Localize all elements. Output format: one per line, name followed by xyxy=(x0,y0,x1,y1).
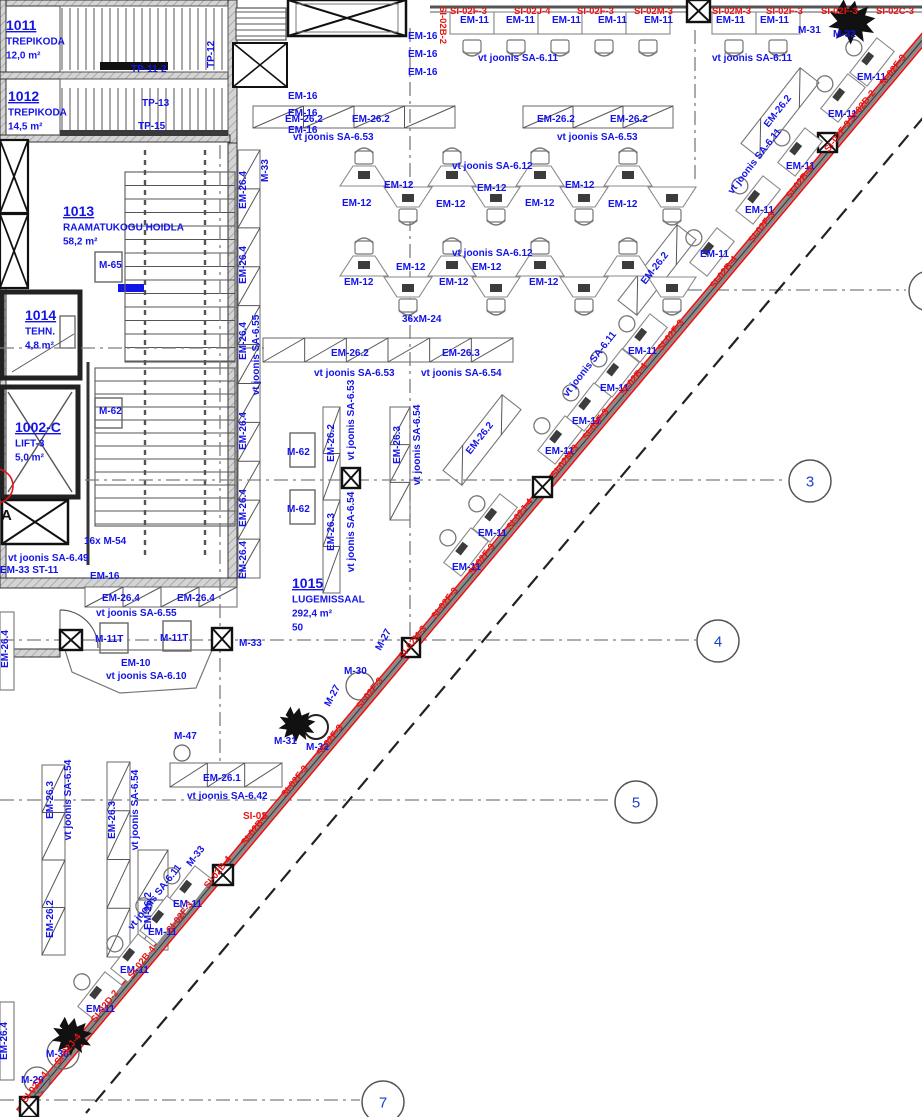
furniture-code-label: vt joonis SA-6.49 xyxy=(8,553,89,564)
facade-panel-label: SI-02M-3 xyxy=(712,6,751,17)
room-area: 14,5 m² xyxy=(8,122,43,133)
wall xyxy=(0,72,228,79)
furniture-code-label: TP-15 xyxy=(138,121,166,132)
room-area: 5,0 m² xyxy=(15,453,45,464)
furniture-code-label: EM-26.4 xyxy=(238,322,249,360)
furniture-code-label: EM-26.3 xyxy=(107,801,118,839)
furniture-code-label: EM-33 ST-11 xyxy=(0,565,59,576)
furniture-code-label: EM-26.4 xyxy=(0,1022,10,1060)
furniture-code-label: EM-26.4 xyxy=(238,489,249,527)
furniture-code-label: vt joonis SA-6.42 xyxy=(187,791,268,802)
furniture-code-label: EM-26.3 xyxy=(45,781,56,819)
furniture-code-label: M-62 xyxy=(287,447,310,458)
furniture-code-label: EM-26.3 xyxy=(326,513,337,551)
stool-m47 xyxy=(174,745,190,761)
furniture-code-label: vt joonis SA-6.53 xyxy=(557,132,638,143)
furniture-code-label: M-33 xyxy=(239,638,262,649)
furniture-code-label: EM-26.4 xyxy=(238,246,249,284)
furniture-code-label: EM-26.4 xyxy=(238,412,249,450)
furniture-code-label: EM-16 xyxy=(288,91,318,102)
furniture-code-label: TP-11-2 xyxy=(131,64,167,75)
furniture-code-label: EM-12 xyxy=(565,180,595,191)
furniture-code-label: vt joonis SA-6.54 xyxy=(421,368,502,379)
room-number: 1012 xyxy=(8,88,39,104)
room-name: LUGEMISSAAL xyxy=(292,595,365,606)
furniture-code-label: M-33 xyxy=(185,844,208,869)
facade-panel-label: SI-02F-3 xyxy=(766,6,803,17)
furniture-code-label: EM-11 xyxy=(628,346,657,357)
furniture-code-label: EM-16 xyxy=(408,49,438,60)
room-area: 292,4 m² xyxy=(292,609,333,620)
room-name: TEHN. xyxy=(25,327,55,338)
furniture-code-label: EM-26.2 xyxy=(331,348,369,359)
furniture-code-label: M-11T xyxy=(95,634,123,645)
furniture-code-label: vt joonis SA-6.12 xyxy=(452,248,533,259)
furniture-code-label: EM-11 xyxy=(700,249,729,260)
room-number: 1002-C xyxy=(15,419,61,435)
furniture-code-label: EM-26.2 xyxy=(285,114,323,125)
furniture-code-label: vt joonis SA-6.54 xyxy=(412,404,423,485)
furniture-code-label: vt joonis SA-6.10 xyxy=(106,671,187,682)
facade-panel-label: SI-02C-3 xyxy=(876,6,914,17)
furniture-code-label: EM-26.3 xyxy=(442,348,480,359)
furniture-code-label: EM-26.4 xyxy=(0,630,11,668)
furniture-code-label: M-47 xyxy=(174,731,197,742)
furniture-code-label: vt joonis SA-6.53 xyxy=(346,379,357,460)
grid-bubble-number: 5 xyxy=(632,795,640,812)
room-capacity: 50 xyxy=(292,623,304,634)
furniture-code-label: vt joonis SA-6.53 xyxy=(314,368,395,379)
room-number: 1014 xyxy=(25,307,56,323)
furniture-code-label: EM-26.2 xyxy=(610,114,648,125)
furniture-code-label: EM-16 xyxy=(408,31,438,42)
grid-bubble-number: 3 xyxy=(806,474,814,491)
furniture-code-label: EM-12 xyxy=(384,180,414,191)
furniture-code-label: EM-12 xyxy=(477,183,507,194)
furniture-code-label: vt joonis SA-6.55 xyxy=(251,314,262,395)
facade-panel-label: SI-02F-3 xyxy=(314,723,345,759)
room-number: 1015 xyxy=(292,575,323,591)
room-name: LIFT-3 xyxy=(15,439,45,450)
wall xyxy=(0,135,230,142)
furniture-code-label: EM-12 xyxy=(344,277,374,288)
furniture-code-label: EM-26.4 xyxy=(238,171,249,209)
room-name: RAAMATUKOGU HOIDLA xyxy=(63,223,184,234)
furniture-code-label: EM-26.2 xyxy=(143,892,154,930)
furniture-code-label: vt joonis SA-6.54 xyxy=(130,769,141,850)
furniture-code-label: EM-26.4 xyxy=(238,541,249,579)
furniture-code-label: vt joonis SA-6.11 xyxy=(478,53,558,64)
furniture-code-label: M-32 xyxy=(833,29,856,40)
furniture-code-label: EM-26.2 xyxy=(326,424,337,462)
furniture-code-label: TP-13 xyxy=(142,98,170,109)
grid-bubbles: 3457 xyxy=(362,460,831,1117)
furniture-code-label: 36xM-24 xyxy=(402,314,442,325)
facade-panel-label: SI-02F-3 xyxy=(821,6,858,17)
room-area: 12,0 m² xyxy=(6,51,41,62)
facade-panel-label: SI-02F-3 xyxy=(450,6,487,17)
furniture-code-label: EM-26.4 xyxy=(102,593,140,604)
grid-bubble-number: 4 xyxy=(714,634,722,651)
grid-bubble-number: 7 xyxy=(379,1095,387,1112)
furniture-code-label: EM-11 xyxy=(478,528,507,539)
furniture-code-label: EM-26.2 xyxy=(352,114,390,125)
room-name: TREPIKODA xyxy=(8,108,67,119)
facade-panel-label: SI-02F-3 xyxy=(429,586,460,622)
furniture-code-label: vt joonis SA-6.54 xyxy=(63,759,74,840)
floor-plan-canvas: TP-11-2TP-13TP-15TP-12M-33M-65M-62EM-16E… xyxy=(0,0,922,1117)
furniture-code-label: EM-12 xyxy=(472,262,502,273)
wall xyxy=(0,0,230,6)
furniture-code-label: EM-26.2 xyxy=(45,900,56,938)
furniture-code-label: vt joonis SA-6.55 xyxy=(96,608,177,619)
furniture-code-label: M-31 xyxy=(798,25,821,36)
furniture-code-label: EM-12 xyxy=(529,277,559,288)
furniture-code-label: vt joonis SA-6.11 xyxy=(712,53,792,64)
furniture-code-label: M-30 xyxy=(344,666,367,677)
furniture-code-label: EM-16 xyxy=(408,67,438,78)
room-number: 1011 xyxy=(6,17,37,33)
furniture-code-label: EM-12 xyxy=(608,199,638,210)
furniture-code-label: M-27 xyxy=(323,683,344,709)
furniture-code-label: EM-26.3 xyxy=(392,426,403,464)
facade-panel-label: SI-02F-3 xyxy=(577,6,614,17)
furniture-code-label: M-65 xyxy=(99,260,122,271)
furniture-code-label: vt joonis SA-6.12 xyxy=(452,161,533,172)
facade-panel-label: SI-02F-3 xyxy=(354,676,385,712)
room-name: TREPIKODA xyxy=(6,37,65,48)
furniture-code-label: vt joonis SA-6.54 xyxy=(346,491,357,572)
floor-plan-svg: TP-11-2TP-13TP-15TP-12M-33M-65M-62EM-16E… xyxy=(0,0,922,1117)
furniture-code-label: TP-12 xyxy=(206,40,217,68)
facade-panel-label: SI-02J-4 xyxy=(514,6,551,17)
furniture-code-label: EM-26.1 xyxy=(203,773,241,784)
furniture-code-label: EM-12 xyxy=(342,198,372,209)
room-number: 1013 xyxy=(63,203,94,219)
furniture-code-label: EM-10 xyxy=(121,658,151,669)
furniture-code-label: M-11T xyxy=(160,633,188,644)
furniture-code-label: M-33 xyxy=(260,159,271,182)
furniture-code-label: EM-26.4 xyxy=(177,593,215,604)
furniture-code-label: EM-12 xyxy=(396,262,426,273)
facade-panel-label: SI-02B-2 xyxy=(437,6,448,44)
room-area: 58,2 m² xyxy=(63,237,98,248)
furniture-code-label: A xyxy=(1,507,12,524)
facade-panel-label: SI-02M-3 xyxy=(634,6,673,17)
furniture-code-label: EM-12 xyxy=(436,199,466,210)
furniture-code-label: EM-12 xyxy=(439,277,469,288)
furniture-code-label: M-62 xyxy=(99,406,122,417)
room-area: 4,8 m² xyxy=(25,341,55,352)
furniture-code-label: EM-12 xyxy=(525,198,555,209)
furniture-code-label: M-31 xyxy=(274,736,297,747)
furniture-code-label: 16x M-54 xyxy=(84,536,127,547)
furniture-code-label: M-62 xyxy=(287,504,310,515)
furniture-code-label: EM-16 xyxy=(90,571,120,582)
furniture-code-label: EM-26.2 xyxy=(537,114,575,125)
furniture-code-label: vt joonis SA-6.53 xyxy=(293,132,374,143)
